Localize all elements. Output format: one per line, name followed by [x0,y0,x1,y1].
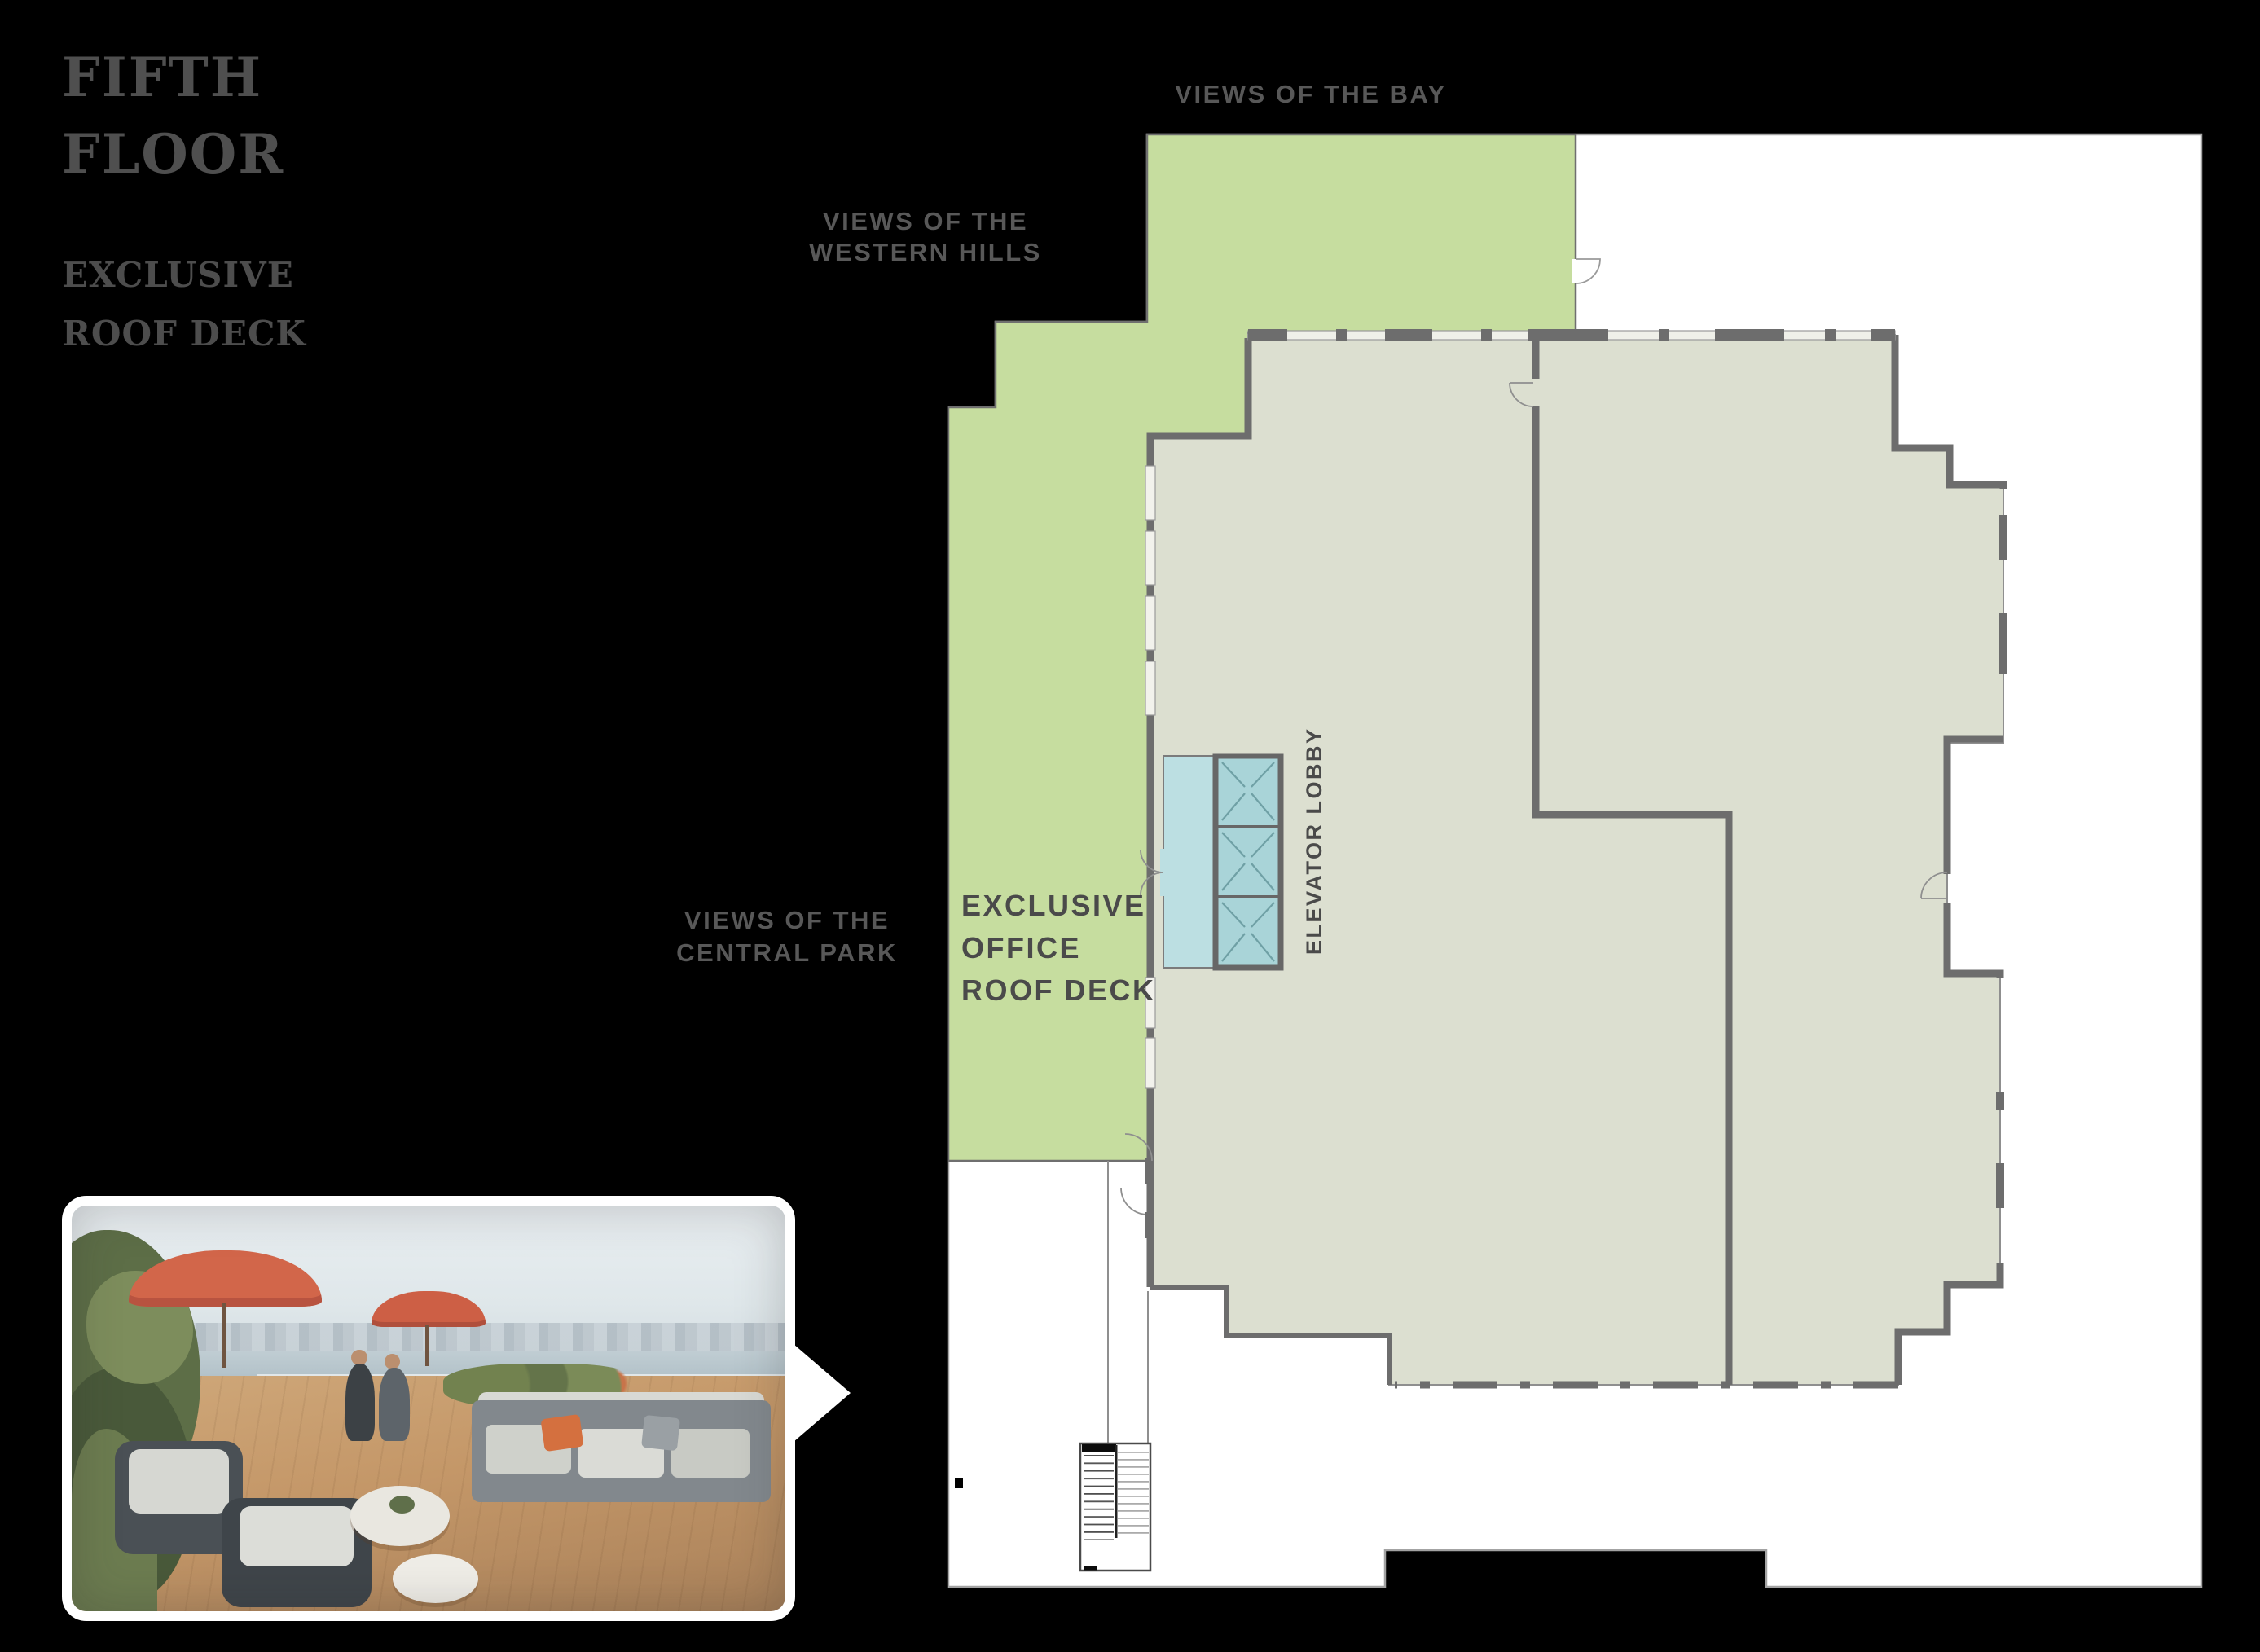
stair-treads-left [1084,1453,1114,1540]
stair-header [1082,1444,1116,1452]
label-views-central-1: VIEWS OF THE [684,906,890,934]
column-mark [955,1478,963,1488]
roof-deck-photo [62,1196,795,1621]
elevator-lobby-strip [1163,756,1216,968]
photo-callout-pointer [794,1344,851,1442]
label-office-deck-2: OFFICE [961,931,1081,964]
label-views-central-2: CENTRAL PARK [676,938,898,967]
page-background: FIFTH FLOOR EXCLUSIVE ROOF DECK [0,0,2260,1652]
label-office-deck-3: ROOF DECK [961,973,1156,1007]
stair-divider [1115,1445,1118,1538]
stair-tick [1084,1566,1097,1571]
deck-partition-door-gap [1572,259,1578,283]
label-views-western-2: WESTERN HILLS [809,238,1042,266]
label-views-western-1: VIEWS OF THE [823,207,1028,235]
elevator-shaft [1216,756,1281,968]
stair-treads-right [1118,1447,1149,1535]
label-office-deck-1: EXCLUSIVE [961,889,1146,922]
photo-vignette [72,1206,785,1611]
label-elevator-lobby: ELEVATOR LOBBY [1302,727,1326,955]
label-views-bay: VIEWS OF THE BAY [1175,80,1446,108]
stairwell [1080,1443,1150,1571]
